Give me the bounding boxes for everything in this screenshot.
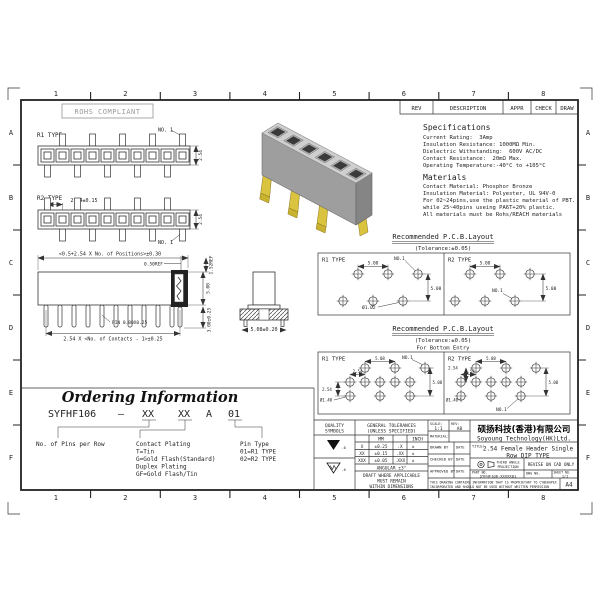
rev-value: A0 bbox=[457, 426, 463, 432]
quality-symbol-note: -0 bbox=[342, 446, 346, 450]
r2-type-label: R2 TYPE bbox=[448, 357, 471, 363]
row-label: E bbox=[9, 389, 13, 397]
checked-by-label: CHECKED BY bbox=[430, 457, 454, 462]
ruler-right: A B C D E F bbox=[586, 129, 591, 462]
tol-cell: ± bbox=[412, 459, 415, 464]
angular-tolerance: ANGULAR ±3° bbox=[377, 466, 407, 472]
dim-254: 2.54 bbox=[322, 387, 332, 392]
r2-pitch-dim: 2.54 bbox=[198, 214, 204, 225]
material-line: Contact Material: Phosphor Bronze bbox=[423, 184, 532, 190]
col-label: 4 bbox=[263, 90, 267, 98]
height-500-dim: 5.00 bbox=[206, 283, 212, 294]
row-label: F bbox=[9, 454, 13, 462]
spec-line: Insulation Resistance: 1000MΩ Min. bbox=[423, 142, 536, 148]
pins-per-row-label: No. of Pins per Row bbox=[36, 441, 105, 448]
r1-front-view: R1 TYPE NO. 1 2.54 bbox=[37, 128, 204, 178]
tol-cell: ±0.05 bbox=[375, 458, 388, 464]
tol-cell: ±0.15 bbox=[375, 451, 388, 457]
sheet-no-value: 1/1 bbox=[562, 475, 568, 479]
tolerance-rows: X ±0.25 .X ± XX ±0.15 .XX ± XXX ±0.05 .X… bbox=[358, 444, 415, 464]
tol-cell: .X bbox=[397, 444, 403, 450]
material-line: For 02~24pins,use the plastic material o… bbox=[423, 198, 575, 204]
third-angle-label: PROJECTION bbox=[497, 465, 518, 469]
plating-line: Duplex Plating bbox=[136, 464, 187, 471]
dim-508-h: 5.08 bbox=[480, 261, 491, 267]
dim-254: 2.54 bbox=[448, 366, 458, 371]
row-label: E bbox=[586, 389, 590, 397]
col-label: 3 bbox=[193, 90, 197, 98]
dim-508-h: 5.08 bbox=[375, 356, 385, 361]
tol-cell: ± bbox=[412, 445, 415, 450]
dwg-no-label: DWG NO. bbox=[526, 472, 540, 476]
material-line: while 25~40pins useing PA6T+20% plastic. bbox=[423, 205, 555, 211]
hole-dia-label: Ø1.40 bbox=[320, 398, 333, 403]
pcb-bottom-tolerance: (Tolerance:±0.05) bbox=[415, 338, 471, 344]
pin-size-dim: PIN 0.80X0.25 bbox=[112, 320, 148, 326]
col-label: 6 bbox=[402, 90, 406, 98]
col-label: 1 bbox=[54, 494, 58, 502]
spec-line: Dielectric Withstanding: 600V AC/DC bbox=[423, 149, 542, 155]
no1-label: NO.1 bbox=[402, 355, 413, 361]
materials-title: Materials bbox=[423, 173, 467, 182]
row-label: C bbox=[586, 259, 590, 267]
r1-type-label: R1 TYPE bbox=[322, 357, 345, 363]
pcb-holes-r1 bbox=[337, 268, 425, 308]
company-name-cn: 硕扬科技(香港)有限公司 bbox=[478, 424, 571, 435]
col-label: 6 bbox=[402, 494, 406, 502]
cross-section-pin bbox=[253, 272, 275, 305]
materials-block: Materials Contact Material: Phosphor Bro… bbox=[423, 173, 575, 218]
quality-symbol-note: -0 bbox=[342, 468, 346, 472]
row-label: F bbox=[586, 454, 590, 462]
tolerances-header: (UNLESS SPECIFIED) bbox=[367, 429, 416, 435]
company-name-en: Soyoung Technology(HK)Ltd. bbox=[477, 436, 571, 443]
row-label: A bbox=[9, 129, 14, 137]
r1-type-label: R1 TYPE bbox=[322, 258, 345, 264]
r2-front-view: R2 TYPE 2.54±0.15 NO. 1 2.54 bbox=[37, 195, 204, 246]
quality-symbol-filled-triangle-icon bbox=[327, 440, 340, 450]
tol-cell: XX bbox=[359, 451, 365, 457]
no1-label: NO.1 bbox=[492, 288, 503, 294]
drawn-by-label: DRAWN BY bbox=[430, 445, 449, 450]
side-body bbox=[38, 272, 186, 305]
quality-header: QUALITY bbox=[325, 423, 344, 429]
col-label: 4 bbox=[263, 494, 267, 502]
part-a: A bbox=[206, 409, 212, 420]
rev-col-header: REV bbox=[412, 106, 423, 112]
draft-note: DRAFT WHERE APPLICABLE bbox=[363, 473, 420, 479]
tol-cell: ±0.25 bbox=[375, 444, 388, 450]
inch-header: INCH bbox=[412, 437, 423, 443]
pcb-top-title: Recommended P.C.B.Layout bbox=[392, 233, 493, 241]
material-label: MATERIAL: bbox=[430, 435, 449, 439]
mm-header: MM bbox=[378, 437, 384, 443]
r1-pitch-dim: 2.54 bbox=[198, 150, 204, 161]
side-view: <0.5+2.54 X No. of Positions>±0.30 0.50R… bbox=[38, 252, 215, 343]
dim-508-h: 5.08 bbox=[486, 356, 496, 361]
col-label: 8 bbox=[541, 90, 545, 98]
pcb-bottom-title: Recommended P.C.B.Layout bbox=[392, 325, 493, 333]
spec-line: Current Rating: 3Amp bbox=[423, 135, 493, 141]
col-label: 7 bbox=[471, 494, 475, 502]
engineering-drawing: 1 2 3 4 5 6 7 8 1 2 3 4 5 6 7 8 A B C D … bbox=[0, 0, 600, 600]
plating-line: GF=Gold Flash/Tin bbox=[136, 471, 198, 478]
pcb-layout-top: Recommended P.C.B.Layout (Tolerance:±0.0… bbox=[318, 233, 570, 315]
date-label: DATE bbox=[456, 446, 464, 450]
rohs-label: ROHS COMPLIANT bbox=[74, 108, 140, 116]
plating-line: G=Gold Flash(Standard) bbox=[136, 456, 215, 463]
drawing-title: 2.54 Female Header Single bbox=[483, 446, 574, 453]
description-col-header: DESCRIPTION bbox=[450, 106, 486, 112]
specifications-title: Specifications bbox=[423, 123, 491, 132]
col-label: 2 bbox=[123, 90, 127, 98]
row-label: A bbox=[586, 129, 591, 137]
part-base: SYFHF106 bbox=[48, 409, 96, 420]
row-label: B bbox=[586, 194, 590, 202]
drawing-title: Row DIP TYPE bbox=[506, 453, 550, 460]
cross-section-view: 5.08±0.20 bbox=[240, 272, 288, 333]
dim-508-v: 5.08 bbox=[431, 286, 442, 292]
material-line: All materials must be Rohs/REACH materia… bbox=[423, 212, 562, 218]
third-angle-label: THIRD ANGLE bbox=[496, 461, 519, 465]
col-label: 2 bbox=[123, 494, 127, 502]
draft-note: MUST REMAIN bbox=[377, 479, 406, 485]
hole-dia-label: Ø1.40 bbox=[446, 398, 459, 403]
tolerances-header: GENERAL TOLERANCES bbox=[367, 423, 416, 429]
row-label: D bbox=[9, 324, 13, 332]
date-label: DATE bbox=[456, 470, 464, 474]
hole-dia-label: Ø1.02 bbox=[362, 304, 376, 311]
tol-cell: X bbox=[361, 444, 364, 450]
tol-cell: ± bbox=[412, 452, 415, 457]
plating-line: T=Tin bbox=[136, 449, 154, 456]
third-angle-projection-icon bbox=[478, 461, 494, 467]
connector-3d-render bbox=[260, 123, 372, 236]
dim-508-v: 5.08 bbox=[433, 380, 443, 385]
ref-152-dim: 1.52REF bbox=[209, 255, 215, 274]
quality-header: SYMBOLS bbox=[325, 429, 344, 435]
ordering-title: Ordering Information bbox=[62, 389, 239, 406]
scale-value: 1:1 bbox=[434, 426, 442, 432]
title-block: QUALITY SYMBOLS -0 -0 GENERAL TOLERANCES… bbox=[314, 388, 578, 490]
appr-col-header: APPR bbox=[510, 106, 524, 112]
dim-254: 2.54 bbox=[353, 369, 363, 374]
quality-symbol-open-triangle-icon bbox=[327, 463, 340, 473]
proprietary-note: INCORPORATED AND SHOULD NOT BE USED WITH… bbox=[430, 485, 549, 489]
r1-type-label: R1 TYPE bbox=[37, 132, 63, 139]
tol-cell: .XX bbox=[396, 451, 404, 457]
overall-length-dim: <0.5+2.54 X No. of Positions>±0.30 bbox=[59, 252, 161, 258]
no1-label: NO.1 bbox=[496, 407, 507, 413]
col-label: 3 bbox=[193, 494, 197, 502]
spec-line: Operating Temperature:-40°C to +105°C bbox=[423, 163, 546, 169]
tol-cell: XXX bbox=[358, 458, 366, 464]
part-dash: – bbox=[118, 409, 125, 420]
rohs-badge: ROHS COMPLIANT bbox=[62, 104, 153, 118]
row-label: B bbox=[9, 194, 13, 202]
contact-span-dim: 2.54 X <No. of Contacts - 1>±0.25 bbox=[63, 337, 162, 343]
part-xx2: XX bbox=[178, 409, 190, 420]
dim-508-v: 5.08 bbox=[549, 380, 559, 385]
drawing-sheet: 1 2 3 4 5 6 7 8 1 2 3 4 5 6 7 8 A B C D … bbox=[0, 0, 600, 600]
no1-label: NO. 1 bbox=[158, 128, 173, 134]
revision-table: REV DESCRIPTION APPR CHECK DRAW bbox=[400, 100, 578, 114]
ordering-section: Ordering Information SYFHF106 – XX XX A … bbox=[21, 388, 314, 478]
col-label: 8 bbox=[541, 494, 545, 502]
pcb-top-tolerance: (Tolerance:±0.05) bbox=[415, 246, 471, 252]
dim-254: 2.54 bbox=[465, 369, 475, 374]
approved-by-label: APPROVED BY bbox=[430, 469, 456, 474]
col-label: 7 bbox=[471, 90, 475, 98]
tail-300-dim: 3.00±0.25 bbox=[207, 308, 213, 333]
spec-line: Contact Resistance: 20mΩ Max. bbox=[423, 156, 522, 162]
revise-note: REVISE ON CAD ONLY bbox=[528, 462, 575, 468]
pcb-bottom-subtitle: For Bottom Entry bbox=[417, 346, 471, 352]
proprietary-note: THIS DRAWING CONTAINS INFORMATION THAT I… bbox=[430, 481, 557, 485]
pintype-line: Pin Type bbox=[240, 441, 269, 448]
part-suffix: 01 bbox=[228, 409, 240, 420]
rev-label: REV: bbox=[451, 422, 459, 426]
date-label: DATE bbox=[456, 458, 464, 462]
tol-cell: .XXX bbox=[395, 458, 406, 464]
plating-line: Contact Plating bbox=[136, 441, 191, 448]
r2-type-label: R2 TYPE bbox=[448, 258, 471, 264]
pcb-layout-bottom: Recommended P.C.B.Layout (Tolerance:±0.0… bbox=[318, 325, 570, 414]
specifications-block: Specifications Current Rating: 3Amp Insu… bbox=[423, 123, 546, 169]
row-label: D bbox=[586, 324, 590, 332]
no1-label: NO. 1 bbox=[158, 240, 173, 246]
part-xx1: XX bbox=[142, 409, 154, 420]
no1-label: NO.1 bbox=[394, 256, 405, 262]
draft-note: WITHIN DIMENSIONS bbox=[370, 484, 414, 490]
span-508-dim: 5.08±0.20 bbox=[250, 327, 277, 333]
draw-col-header: DRAW bbox=[560, 106, 574, 112]
dim-508-h: 5.08 bbox=[368, 261, 379, 267]
pcb-holes-r2 bbox=[449, 268, 537, 308]
col-label: 5 bbox=[332, 90, 336, 98]
check-col-header: CHECK bbox=[535, 106, 552, 112]
material-line: Insulation Material: Polyester, UL 94V-0 bbox=[423, 191, 555, 197]
col-label: 5 bbox=[332, 494, 336, 502]
part-no-value: SYFHF106-XXXXX01 bbox=[480, 474, 517, 479]
scale-label: SCALE: bbox=[430, 422, 443, 426]
ref-050-dim: 0.50REF bbox=[144, 262, 163, 268]
pintype-line: 01=R1 TYPE bbox=[240, 449, 277, 456]
row-label: C bbox=[9, 259, 13, 267]
pintype-line: 02=R2 TYPE bbox=[240, 456, 277, 463]
dim-508-v: 5.08 bbox=[546, 286, 557, 292]
sheet-size: A4 bbox=[565, 482, 573, 489]
col-label: 1 bbox=[54, 90, 58, 98]
